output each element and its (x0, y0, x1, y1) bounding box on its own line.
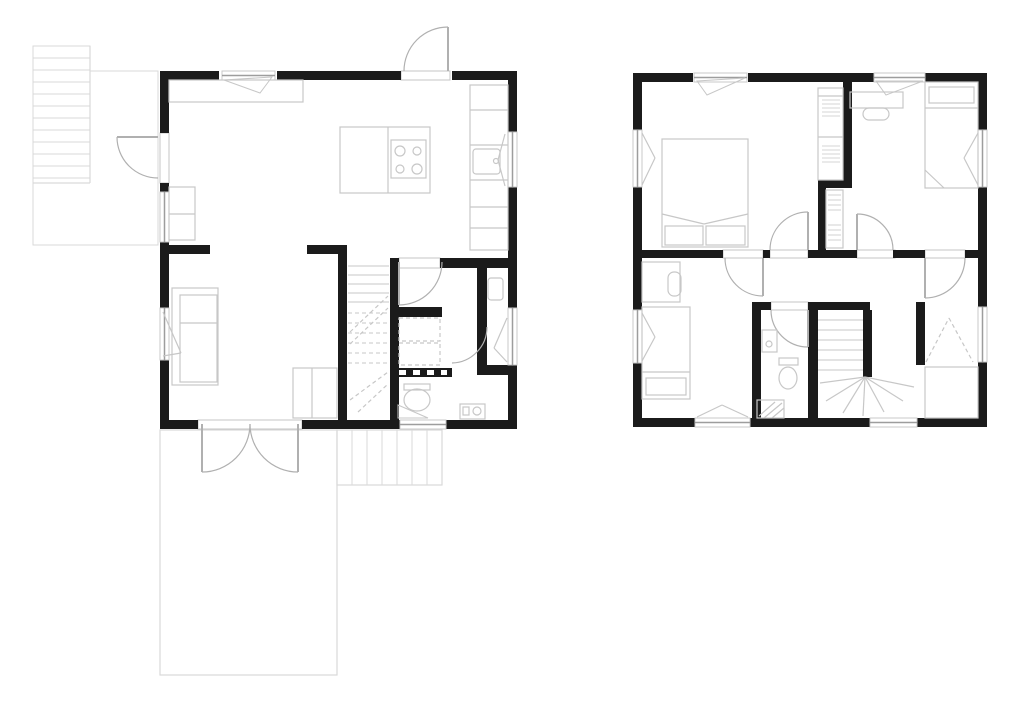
window-marker (964, 158, 978, 185)
wall-segment (390, 258, 399, 420)
stair-winder (826, 377, 865, 401)
window-marker (642, 337, 655, 361)
wall-cabinet (488, 278, 503, 300)
washer-hatch (759, 402, 775, 416)
wall-segment (863, 310, 872, 377)
toilet (404, 389, 430, 411)
door-threshold (401, 71, 450, 80)
built-in-closet (925, 367, 978, 418)
wall-segment (978, 73, 987, 130)
storage-room-door-swing (925, 258, 965, 298)
desk (850, 92, 903, 108)
sofa-seat (180, 295, 217, 382)
wall-segment (302, 420, 400, 429)
blanket-fold (662, 214, 704, 224)
wall-segment (748, 73, 874, 82)
door-threshold (925, 250, 965, 258)
window-marker (876, 81, 923, 95)
floor-plan-page: Two-storey house floor plans (0, 0, 1024, 703)
wall-segment (277, 71, 401, 80)
single-bed (642, 307, 690, 399)
wall-segment (633, 363, 642, 427)
wall-segment (160, 71, 169, 133)
sink-drain (766, 341, 772, 347)
stair-winder (358, 384, 388, 412)
wall-segment (160, 242, 169, 310)
stair-winder (820, 377, 865, 383)
entry-deck (33, 46, 158, 245)
window-marker (964, 133, 978, 158)
wall-segment (978, 362, 987, 427)
wall-segment (452, 71, 517, 80)
kitchen-exterior-door-swing (404, 27, 448, 71)
wall-segment (965, 250, 987, 258)
entry-door-swing (117, 137, 158, 178)
double-bed (662, 139, 748, 247)
wall-segment (843, 82, 852, 188)
washing-machine (757, 400, 784, 418)
wall-segment (508, 365, 517, 429)
wall-segment (508, 71, 517, 132)
patio (160, 430, 337, 675)
window-marker (494, 348, 507, 362)
stove-burner (396, 165, 404, 173)
wall-segment (633, 418, 695, 427)
kitchen-sink (473, 149, 500, 174)
blanket-fold (925, 170, 944, 188)
kitchen-island (340, 127, 430, 193)
stair-winder (843, 377, 865, 413)
wall-segment (808, 250, 857, 258)
wall-segment (160, 420, 198, 429)
ground-floor-plan (33, 27, 517, 675)
patio-door-right-swing (250, 424, 298, 472)
washer-panel (463, 407, 469, 415)
bed-pillow (706, 226, 745, 245)
wall-notch (413, 370, 420, 375)
door-threshold (399, 258, 440, 268)
corner-shelf (398, 405, 428, 418)
window-marker (642, 158, 655, 185)
wall-segment (390, 307, 442, 317)
wall-segment (750, 418, 870, 427)
wall-segment (818, 180, 852, 188)
wall-segment (477, 365, 508, 375)
wall-segment (818, 188, 826, 258)
wardrobe (399, 318, 440, 341)
stair-winder (350, 372, 388, 400)
wall-segment (925, 73, 987, 82)
wall-segment (763, 250, 770, 258)
wall-segment (808, 302, 818, 418)
stove-burner (395, 146, 405, 156)
bed-pillow (929, 87, 974, 103)
wall-segment (508, 187, 517, 308)
wall-segment (917, 418, 987, 427)
door-threshold (770, 250, 808, 258)
bedroom-3-door-swing (725, 258, 763, 296)
bed-pillow (646, 378, 686, 395)
kitchen-counter (169, 80, 303, 102)
upper-floor-plan (633, 73, 987, 427)
wall-segment (446, 420, 517, 429)
patio-door-left-swing (202, 424, 250, 472)
door-threshold (857, 250, 895, 258)
stair-winder (863, 377, 865, 416)
wall-notch (427, 370, 434, 375)
wall-segment (978, 187, 987, 307)
washer-hatch (764, 403, 782, 418)
wall-segment (633, 73, 642, 130)
patio-stairs (337, 430, 442, 485)
door-threshold (723, 250, 763, 258)
washer-door (473, 407, 481, 415)
door-threshold (160, 133, 169, 183)
chair (668, 272, 681, 296)
toilet (779, 367, 797, 389)
wall-segment (169, 245, 210, 254)
wall-segment (440, 258, 517, 268)
bedroom-2-door-swing (857, 214, 893, 250)
window-marker (642, 313, 655, 337)
window-marker (642, 133, 655, 158)
wall-segment (477, 268, 487, 375)
wall-segment (160, 360, 169, 429)
door-threshold (771, 302, 808, 310)
stair-winder (865, 377, 884, 412)
wall-notch (441, 370, 447, 375)
wall-segment (633, 187, 642, 310)
blanket-fold (704, 214, 748, 224)
single-bed (925, 82, 978, 188)
sofa (172, 288, 218, 385)
wall-segment (642, 250, 723, 258)
closet-door-dashed (926, 318, 949, 362)
stove-burner (413, 147, 421, 155)
wardrobe (399, 343, 440, 365)
window-marker (494, 318, 507, 348)
bedroom-1-door-swing (770, 212, 808, 250)
wall-segment (160, 183, 169, 192)
chair (863, 108, 889, 120)
bed-pillow (665, 226, 703, 245)
floor-plan-image (0, 0, 1024, 703)
wall-segment (916, 302, 925, 365)
stove-burner (412, 164, 422, 174)
closet (818, 88, 843, 180)
side-table (293, 368, 337, 418)
window-marker (498, 134, 505, 160)
window-marker (722, 405, 748, 417)
closet-door-dashed (949, 318, 973, 362)
wall-notch (399, 370, 406, 375)
wall-segment (893, 250, 925, 258)
wall-segment (338, 245, 347, 420)
closet (826, 190, 843, 248)
window-marker (697, 405, 722, 417)
toilet-tank (779, 358, 798, 365)
